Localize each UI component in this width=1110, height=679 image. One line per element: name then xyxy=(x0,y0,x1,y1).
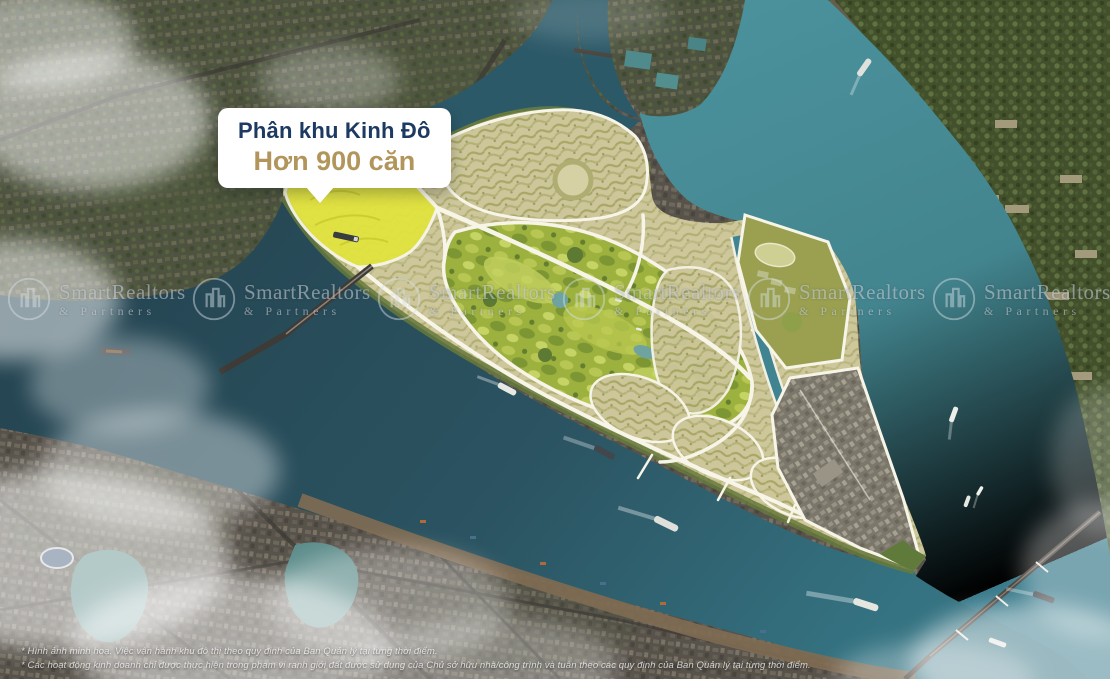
disclaimer: * Hình ảnh minh hoạ. Việc vận hành khu đ… xyxy=(21,645,811,673)
zone-north-bulge xyxy=(441,110,647,221)
disclaimer-line-1: * Hình ảnh minh hoạ. Việc vận hành khu đ… xyxy=(21,645,811,659)
disclaimer-line-2: * Các hoạt động kinh doanh chỉ được thực… xyxy=(21,659,811,673)
callout-subtitle: Hơn 900 căn xyxy=(238,145,431,177)
masterplan-screenshot: Phân khu Kinh Đô Hơn 900 căn SmartRealto… xyxy=(0,0,1110,679)
callout-pointer xyxy=(306,187,334,203)
aerial-masterplan-map xyxy=(0,0,1110,679)
bulge-radial-court xyxy=(555,162,591,198)
callout-title: Phân khu Kinh Đô xyxy=(238,117,431,145)
zone-callout: Phân khu Kinh Đô Hơn 900 căn xyxy=(218,108,451,188)
